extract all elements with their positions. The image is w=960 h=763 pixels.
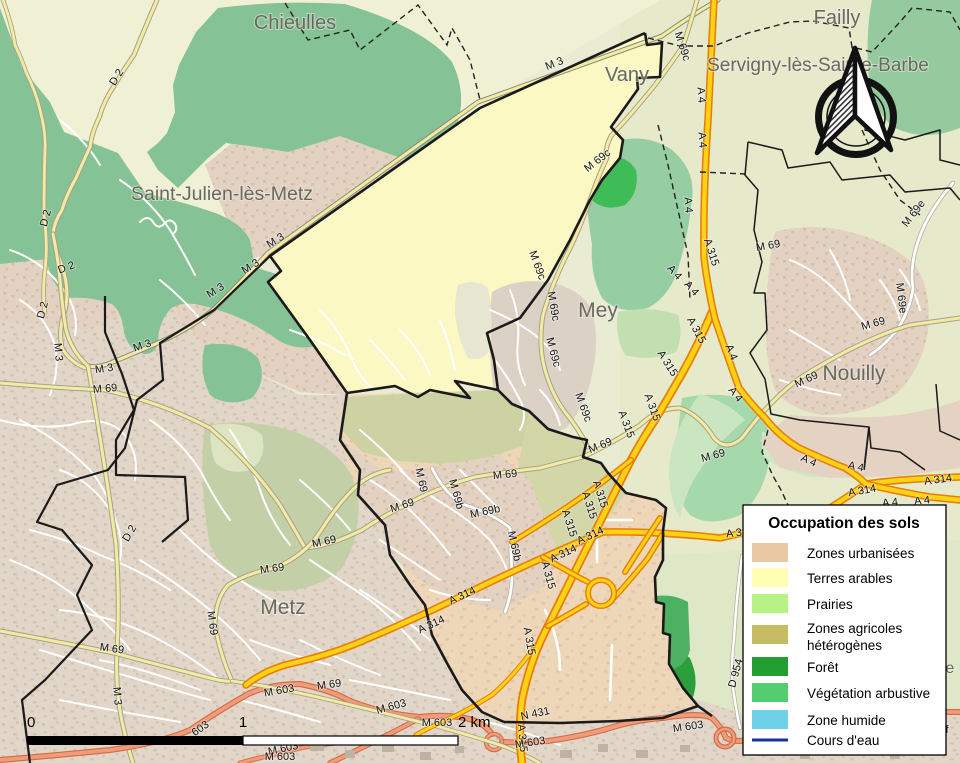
svg-text:M 3: M 3 [94, 362, 114, 376]
svg-text:hétérogènes: hétérogènes [807, 638, 882, 653]
svg-text:Zones urbanisées: Zones urbanisées [807, 546, 915, 561]
svg-text:1: 1 [239, 714, 247, 731]
svg-text:Terres arables: Terres arables [807, 571, 893, 586]
svg-text:M 69: M 69 [92, 382, 117, 396]
svg-text:A 4: A 4 [695, 132, 708, 149]
svg-text:A 4: A 4 [694, 87, 707, 104]
svg-text:Zone humide: Zone humide [807, 713, 886, 728]
svg-text:Forêt: Forêt [807, 660, 839, 675]
svg-text:Occupation des sols: Occupation des sols [768, 515, 920, 532]
svg-text:Nouilly: Nouilly [822, 362, 886, 385]
svg-text:0: 0 [27, 714, 35, 731]
svg-text:M 3: M 3 [110, 686, 124, 705]
svg-text:Failly: Failly [814, 7, 861, 29]
svg-text:M 69: M 69 [492, 468, 518, 482]
svg-text:Metz: Metz [260, 596, 306, 619]
svg-text:M 603: M 603 [422, 717, 453, 729]
svg-text:Saint-Julien-lès-Metz: Saint-Julien-lès-Metz [131, 183, 313, 205]
svg-text:2 km: 2 km [458, 714, 491, 731]
svg-text:Cours d'eau: Cours d'eau [807, 733, 879, 748]
svg-text:M 603: M 603 [265, 751, 296, 763]
svg-text:Zones agricoles: Zones agricoles [807, 621, 903, 636]
svg-text:Mey: Mey [578, 299, 618, 322]
svg-text:M 3: M 3 [51, 342, 65, 361]
svg-text:Vany: Vany [605, 64, 649, 86]
svg-text:Prairies: Prairies [807, 597, 853, 612]
svg-text:Végétation arbustive: Végétation arbustive [807, 686, 930, 701]
svg-text:A 4: A 4 [681, 197, 694, 214]
svg-text:Servigny-lès-Sainte-Barbe: Servigny-lès-Sainte-Barbe [707, 55, 929, 76]
svg-text:Chieulles: Chieulles [254, 12, 336, 34]
